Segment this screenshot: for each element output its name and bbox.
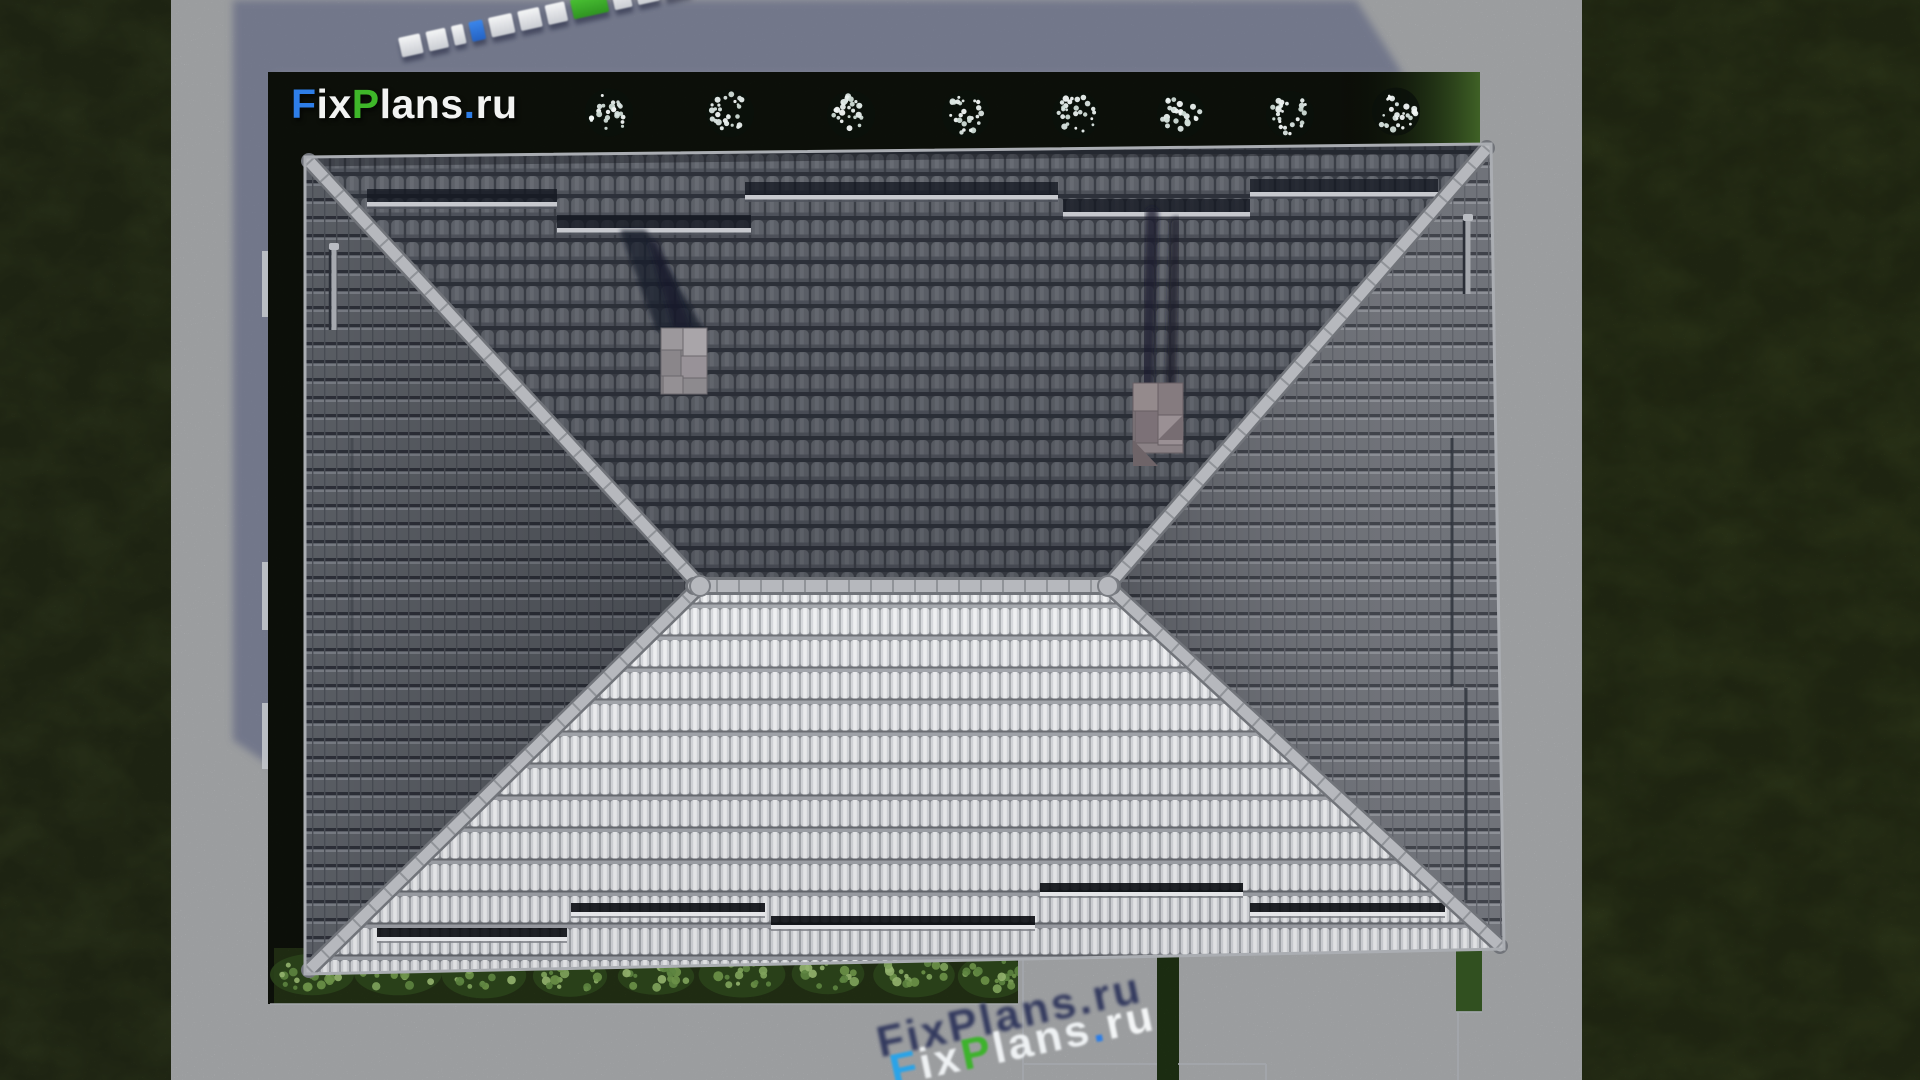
grass-left [0,0,171,1080]
watermark-top-letter-block [544,1,568,25]
flower-bush [585,89,633,137]
chimney-1 [661,328,707,394]
flower-bush [827,91,875,139]
snow-guard-rail [1250,179,1438,199]
brand-seg-lans: lans [380,81,464,127]
ridge-cap [690,576,1118,596]
watermark-top-letter-block [468,19,486,42]
flower-bush [1372,88,1420,136]
flower-bush [942,90,990,138]
flower-bush [1266,91,1314,139]
watermark-top-letter-block [425,28,449,52]
snow-guard-rail [1040,883,1243,898]
brand-seg-dot: . [464,81,476,127]
hip-roof [305,144,1504,974]
flower-bush [1157,90,1205,138]
snow-guard-rail [771,916,1035,931]
watermark-top-letter-block [451,24,467,46]
flower-bush [706,89,754,137]
brand-seg-p: P [352,81,380,127]
ridge-junction-left [690,576,710,596]
snow-guard-rail [571,903,765,918]
brand-seg-ix: ix [317,81,352,127]
snow-guard-rail [367,189,557,209]
driveway-hedge-patch [1456,946,1482,1012]
aerial-roof-render: FixPlans.ru FixPlans.ru FixPlans.ru [0,0,1920,1080]
scene-svg [0,0,1920,1080]
snow-guard-rail [557,215,751,235]
snow-guard-rail [377,928,567,943]
brand-seg-ru: ru [476,81,518,127]
brand-logo: FixPlans.ru [291,84,518,125]
snow-guard-rail [745,182,1058,202]
ridge-junction-right [1098,576,1118,596]
brand-seg-f: F [291,81,317,127]
grass-right [1582,0,1920,1080]
flower-bush [1052,91,1100,139]
snow-guard-rail [1250,903,1445,918]
